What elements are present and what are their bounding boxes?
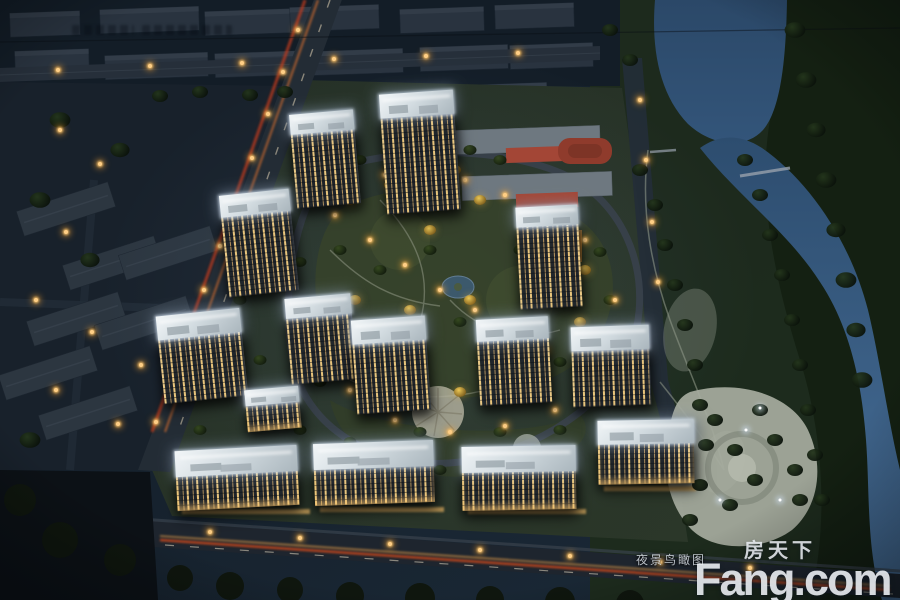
night-aerial-rendering: 夜景鸟瞰图 房天下 Fang.com xyxy=(0,0,900,600)
fang-watermark-logo: Fang.com xyxy=(694,557,900,600)
faint-watermark-text xyxy=(72,25,134,35)
faint-watermark-text xyxy=(142,25,232,35)
scene-base xyxy=(0,0,900,600)
fang-watermark: 房天下 Fang.com xyxy=(694,541,900,600)
